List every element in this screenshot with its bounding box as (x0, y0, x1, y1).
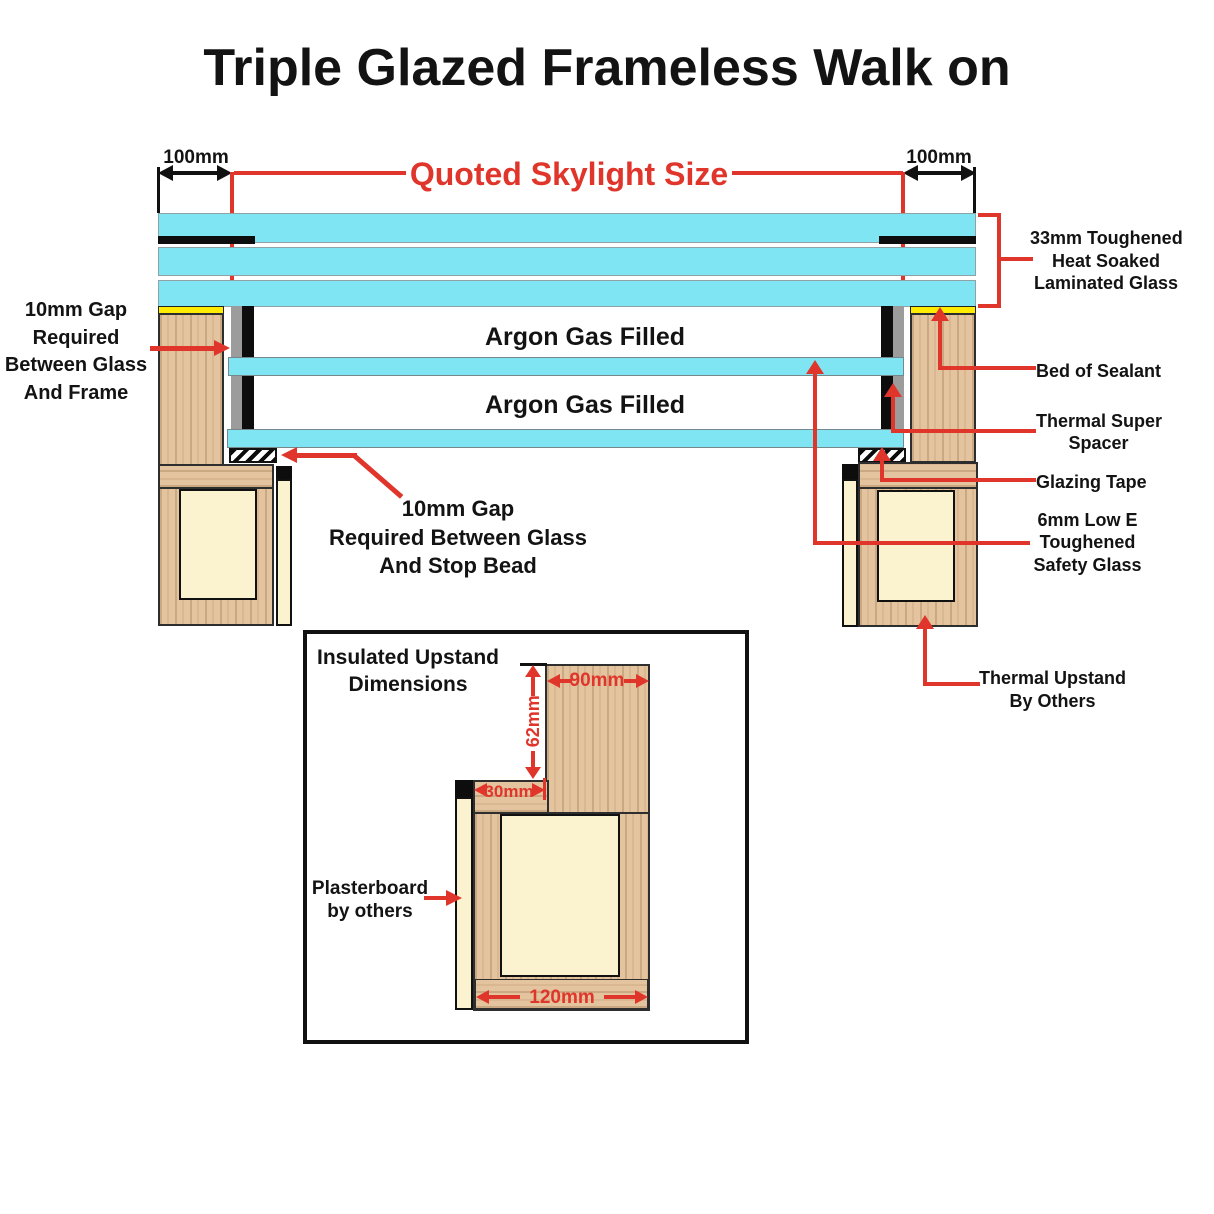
inset-62mm-arrowhead-bottom (525, 767, 541, 779)
gap-frame-arrow-shaft (150, 346, 216, 351)
inset-90mm-shaft-left (559, 679, 572, 683)
middle-glass-pane (228, 357, 904, 376)
laminated-line-2: Heat Soaked (1030, 250, 1182, 273)
stop-bead-step-left (158, 464, 274, 489)
diagram-canvas: Triple Glazed Frameless Walk on 100mm 10… (0, 0, 1214, 1214)
inset-dim-120mm: 120mm (520, 986, 604, 1010)
gap-stop-bead-line-1: 10mm Gap (328, 495, 588, 524)
thermal-upstand-line-2: By Others (970, 690, 1135, 713)
laminated-line-1: 33mm Toughened (1030, 227, 1182, 250)
low-e-line-vertical (813, 374, 817, 545)
thermal-upstand-line-horizontal (923, 682, 980, 686)
gap-stop-bead-line-3: And Stop Bead (328, 552, 588, 581)
plasterboard-line-1: Plasterboard (300, 877, 440, 900)
low-e-callout-text: 6mm Low E Toughened Safety Glass (1030, 509, 1145, 576)
thermal-spacer-arrowhead (884, 383, 902, 397)
page-title: Triple Glazed Frameless Walk on (0, 36, 1214, 101)
low-e-line-3: Safety Glass (1030, 554, 1145, 576)
quoted-skylight-size-label: Quoted Skylight Size (399, 154, 739, 194)
inset-corner-block (455, 780, 473, 798)
inset-dim-62mm: 62mm (522, 693, 545, 749)
low-e-line-horizontal (815, 541, 1030, 545)
low-e-line-1: 6mm Low E (1030, 509, 1145, 531)
gap-frame-line-2: Required (0, 325, 152, 353)
laminated-connector-line (1001, 257, 1033, 261)
frame-column-left (158, 313, 224, 466)
thermal-spacer-callout-text: Thermal Super Spacer (1036, 410, 1161, 455)
laminated-line-3: Laminated Glass (1030, 272, 1182, 295)
thermal-upstand-callout-text: Thermal Upstand By Others (970, 667, 1135, 713)
quoted-size-line-left (234, 171, 406, 175)
thermal-upstand-arrowhead (916, 615, 934, 629)
right-dim-extension-line (973, 167, 976, 213)
right-dim-arrowhead-left (903, 165, 918, 181)
inset-dim-30mm: 30mm (482, 781, 536, 802)
bottom-glass-pane (227, 429, 904, 448)
inset-90mm-arrowhead-right (636, 674, 649, 688)
gap-frame-line-3: Between Glass (0, 352, 152, 380)
laminated-bracket-bottom (978, 304, 1001, 308)
inset-title-line-2: Dimensions (308, 671, 508, 698)
laminated-glass-ply-1 (158, 213, 976, 243)
right-dim-arrow-shaft (916, 171, 962, 175)
thermal-upstand-line-1: Thermal Upstand (970, 667, 1135, 690)
left-dim-extension-line (157, 167, 160, 213)
gap-stop-bead-callout-text: 10mm Gap Required Between Glass And Stop… (328, 495, 588, 581)
plasterboard-line-2: by others (300, 900, 440, 923)
stop-bead-step-right (858, 462, 978, 489)
low-e-line-2: Toughened (1030, 531, 1145, 553)
laminated-glass-ply-2 (158, 247, 976, 276)
interlayer-edge-left (158, 236, 255, 244)
inset-30mm-tick (543, 778, 546, 800)
glazing-tape-callout-text: Glazing Tape (1036, 471, 1176, 494)
inset-120mm-arrowhead-right (635, 990, 648, 1004)
thermal-spacer-line-2: Spacer (1036, 432, 1161, 454)
gap-stop-bead-line-2: Required Between Glass (328, 524, 588, 553)
gap-frame-line-1: 10mm Gap (0, 297, 152, 325)
stop-bead-block-left (276, 466, 292, 479)
upstand-insulation-left (179, 489, 257, 600)
plasterboard-callout-text: Plasterboard by others (300, 877, 440, 923)
upstand-insulation-right (877, 490, 955, 602)
thermal-spacer-line-horizontal (893, 429, 1036, 433)
laminated-glass-ply-3 (158, 280, 976, 307)
laminated-bracket-top (978, 213, 1001, 217)
stop-bead-block-right (842, 464, 858, 479)
argon-gas-label-top: Argon Gas Filled (335, 322, 835, 353)
inner-board-right (842, 479, 858, 627)
laminated-glass-callout-text: 33mm Toughened Heat Soaked Laminated Gla… (1030, 227, 1182, 295)
argon-gas-label-bottom: Argon Gas Filled (335, 390, 835, 421)
bed-of-sealant-line-horizontal (940, 366, 1036, 370)
gap-stop-bead-shaft-horizontal (295, 453, 357, 458)
inset-title-line-1: Insulated Upstand (308, 644, 508, 671)
bed-of-sealant-arrowhead (931, 307, 949, 321)
inset-120mm-shaft-left (487, 995, 520, 999)
thermal-upstand-line-vertical (923, 620, 927, 686)
gap-stop-bead-shaft-diagonal (352, 453, 404, 499)
inset-insulation-panel (500, 814, 620, 977)
bed-of-sealant-callout-text: Bed of Sealant (1036, 360, 1196, 383)
frame-column-right (910, 313, 976, 463)
inset-120mm-shaft-right (604, 995, 637, 999)
glazing-tape-line-horizontal (882, 478, 1036, 482)
thermal-spacer-line-1: Thermal Super (1036, 410, 1161, 432)
gap-frame-callout-text: 10mm Gap Required Between Glass And Fram… (0, 297, 152, 407)
left-dim-arrowhead-left (158, 165, 173, 181)
quoted-size-line-right (732, 171, 903, 175)
gap-frame-line-4: And Frame (0, 380, 152, 408)
left-dim-arrow-shaft (170, 171, 220, 175)
low-e-arrowhead (806, 360, 824, 374)
plasterboard-arrowhead (446, 890, 462, 906)
inset-title: Insulated Upstand Dimensions (308, 644, 508, 698)
interlayer-edge-right (879, 236, 976, 244)
glazing-tape-left (229, 448, 277, 463)
inner-board-left (276, 479, 292, 626)
gap-frame-arrowhead (214, 340, 230, 356)
glazing-tape-arrowhead (873, 447, 891, 461)
